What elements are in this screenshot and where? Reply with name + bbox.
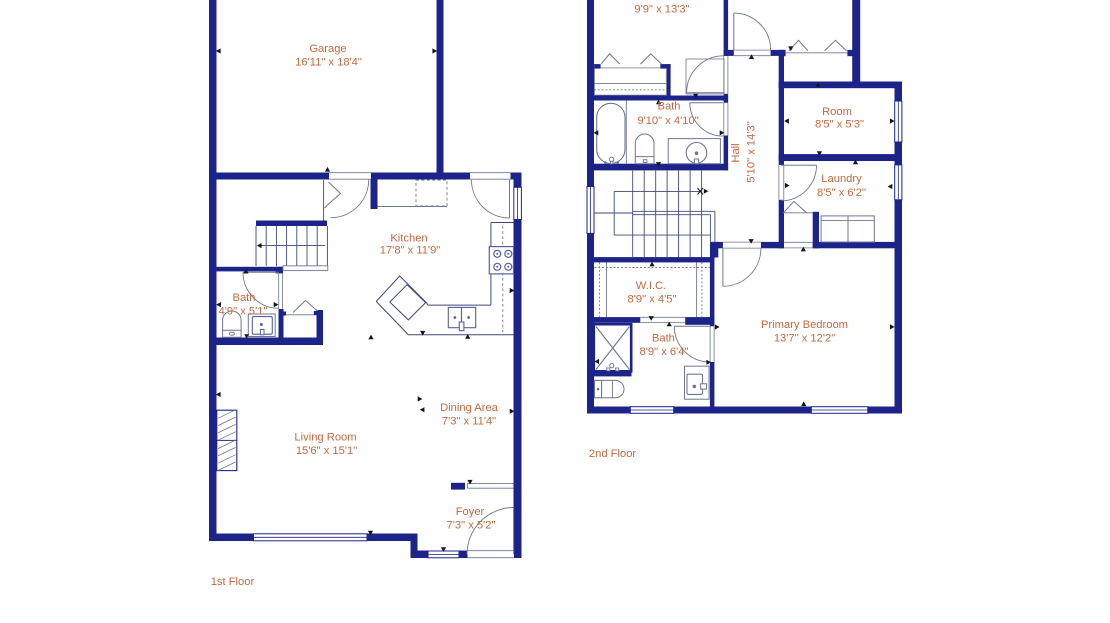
svg-text:Garage: Garage	[309, 43, 346, 55]
svg-text:5'10" x 14'3": 5'10" x 14'3"	[746, 121, 758, 182]
svg-text:15'6" x 15'1": 15'6" x 15'1"	[296, 445, 357, 457]
svg-text:Dining Area: Dining Area	[440, 402, 499, 414]
svg-text:8'9" x 4'5": 8'9" x 4'5"	[628, 293, 677, 305]
svg-text:8'5" x 6'2": 8'5" x 6'2"	[817, 187, 866, 199]
svg-text:9'10" x 4'10": 9'10" x 4'10"	[637, 115, 698, 127]
svg-text:Room: Room	[822, 106, 852, 118]
svg-text:7'3" x 5'2": 7'3" x 5'2"	[447, 520, 496, 532]
svg-text:17'8" x 11'9": 17'8" x 11'9"	[380, 244, 441, 256]
svg-text:Living Room: Living Room	[294, 431, 356, 443]
svg-text:Laundry: Laundry	[821, 173, 862, 185]
svg-text:Primary Bedroom: Primary Bedroom	[761, 319, 848, 331]
svg-text:1st Floor: 1st Floor	[211, 576, 255, 588]
svg-text:Hall: Hall	[730, 143, 742, 162]
svg-text:8'5" x 5'3": 8'5" x 5'3"	[815, 118, 864, 130]
svg-text:W.I.C.: W.I.C.	[636, 280, 666, 292]
svg-text:7'3" x 11'4": 7'3" x 11'4"	[442, 415, 496, 427]
svg-text:4'9" x 5'1": 4'9" x 5'1"	[219, 305, 268, 317]
svg-text:16'11" x 18'4": 16'11" x 18'4"	[295, 56, 362, 68]
svg-text:9'9" x 13'3": 9'9" x 13'3"	[634, 4, 689, 16]
svg-text:Foyer: Foyer	[456, 506, 485, 518]
svg-text:Bath: Bath	[232, 292, 255, 304]
svg-text:Bath: Bath	[657, 101, 680, 113]
svg-text:2nd Floor: 2nd Floor	[589, 448, 637, 460]
svg-text:8'9" x 6'4": 8'9" x 6'4"	[640, 346, 689, 358]
svg-text:Kitchen: Kitchen	[390, 233, 427, 245]
svg-text:Bath: Bath	[652, 332, 675, 344]
svg-text:13'7" x 12'2": 13'7" x 12'2"	[774, 332, 835, 344]
